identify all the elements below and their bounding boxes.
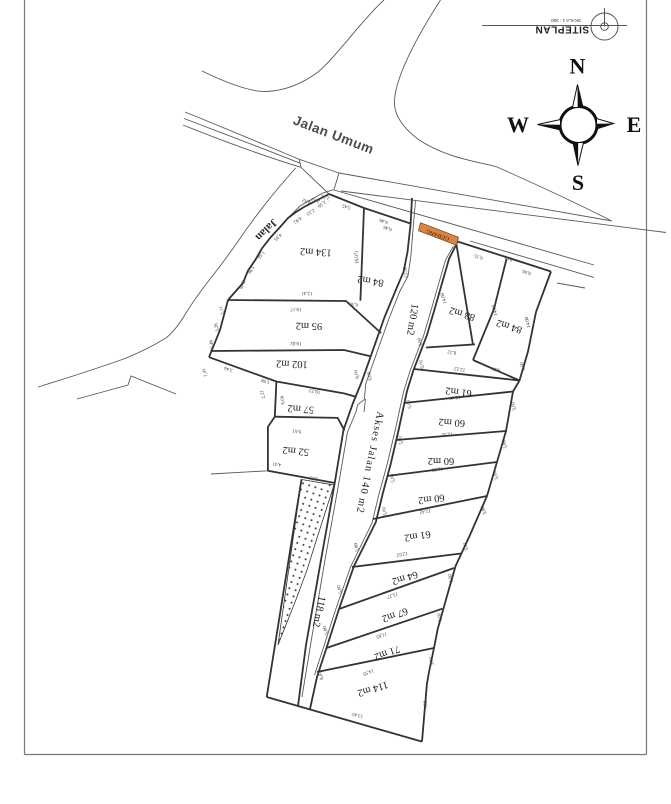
svg-text:N: N — [570, 54, 586, 79]
svg-text:57 m2: 57 m2 — [287, 402, 314, 415]
svg-text:W: W — [507, 112, 529, 137]
svg-text:19,17: 19,17 — [290, 306, 302, 311]
svg-text:60 m2: 60 m2 — [428, 455, 455, 466]
svg-text:52 m2: 52 m2 — [282, 444, 309, 457]
svg-text:19,02: 19,02 — [290, 340, 302, 345]
svg-text:SKALA 1 : 300: SKALA 1 : 300 — [551, 18, 581, 23]
svg-text:(6,07): (6,07) — [355, 251, 360, 264]
svg-text:134 m2: 134 m2 — [300, 245, 332, 258]
svg-text:95 m2: 95 m2 — [296, 320, 323, 331]
svg-text:7,22: 7,22 — [424, 700, 430, 710]
svg-text:12,32: 12,32 — [441, 431, 453, 437]
svg-text:13,41: 13,41 — [301, 290, 313, 295]
svg-text:6,09: 6,09 — [281, 395, 287, 405]
svg-text:12,47: 12,47 — [449, 394, 461, 400]
svg-text:SITEPLAN: SITEPLAN — [535, 23, 589, 34]
svg-text:E: E — [627, 112, 642, 137]
svg-text:60 m2: 60 m2 — [438, 416, 465, 429]
svg-text:102 m2: 102 m2 — [276, 357, 308, 369]
svg-text:S: S — [572, 170, 584, 195]
svg-text:9,61: 9,61 — [292, 428, 302, 434]
